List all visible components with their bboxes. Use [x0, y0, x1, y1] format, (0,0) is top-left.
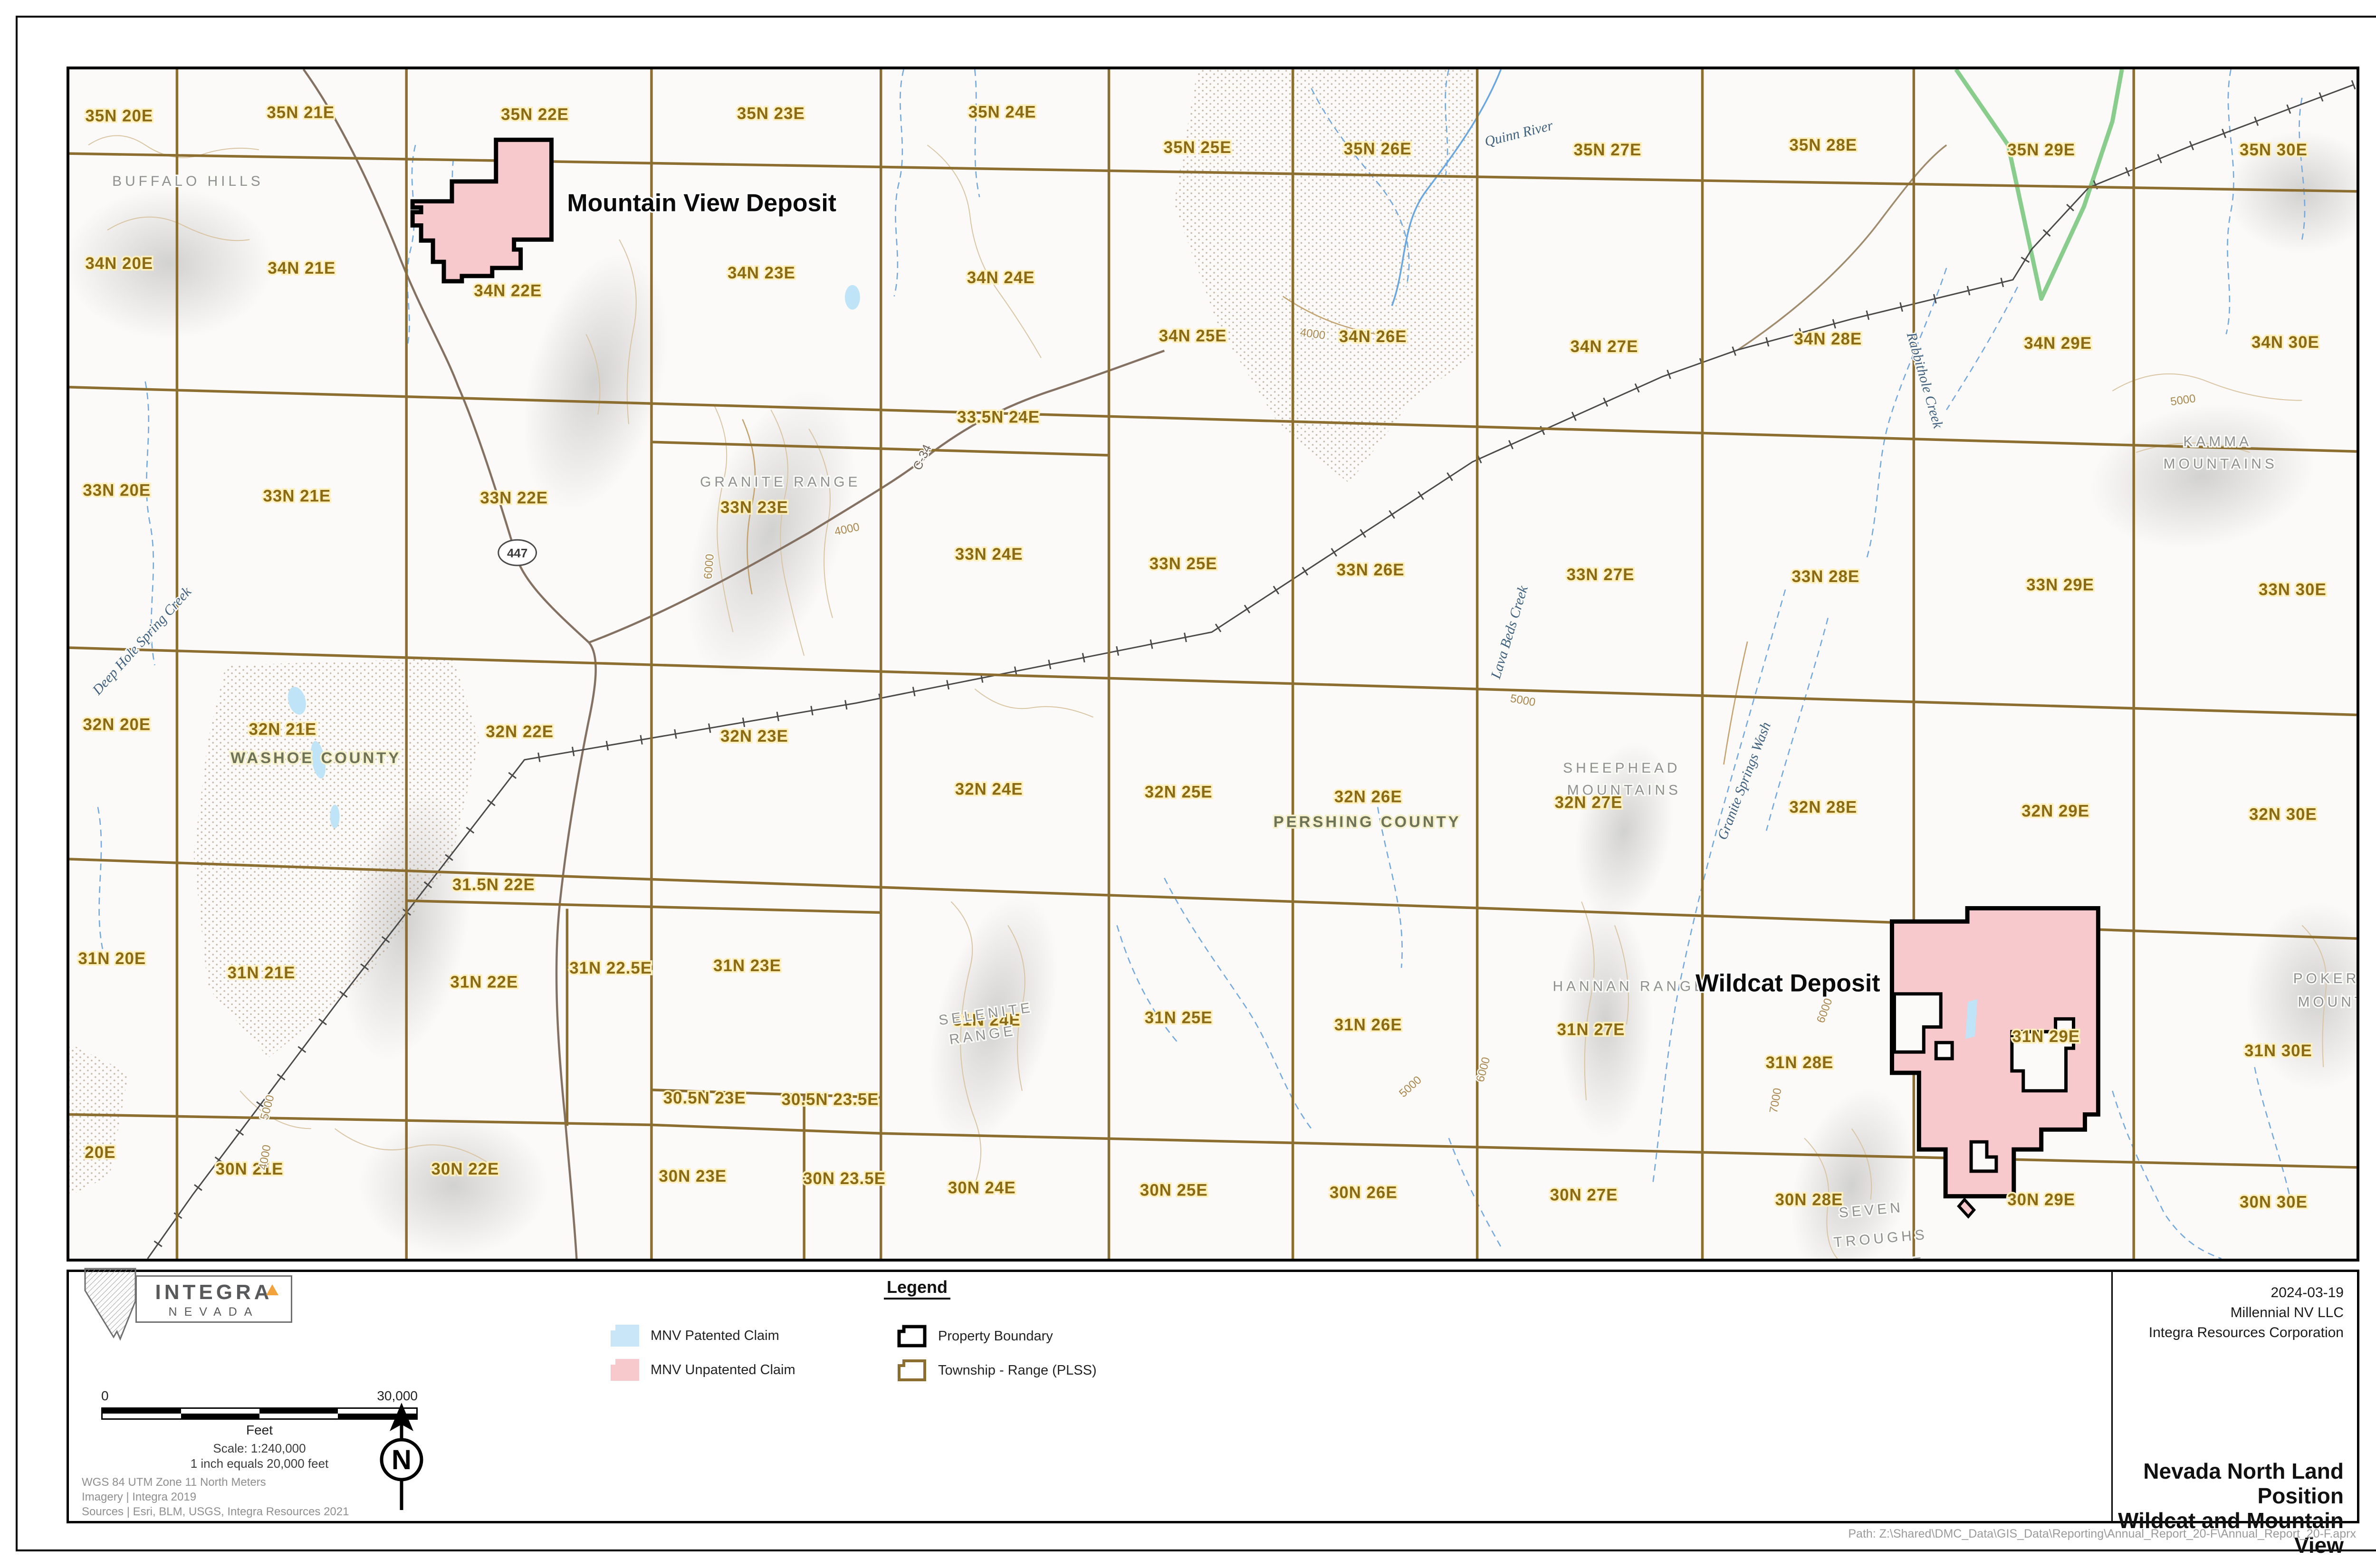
township-label: 35N 23E [737, 105, 805, 123]
township-label: 31N 25E [1145, 1008, 1213, 1027]
township-label: 30N 28E [1775, 1191, 1843, 1209]
route-shield-447: 447 [498, 540, 537, 565]
map-title: Nevada North Land Position Wildcat and M… [2115, 1459, 2344, 1558]
township-label: 31N 29E [2012, 1027, 2080, 1046]
township-label: 35N 21E [267, 104, 335, 122]
property-boundary-icon [896, 1324, 928, 1348]
township-label: 32N 20E [83, 715, 151, 734]
township-label: 35N 28E [1789, 136, 1857, 154]
deposit-label: Wildcat Deposit [1696, 969, 1880, 997]
nevada-state-icon [82, 1266, 139, 1347]
legend-item-label: Property Boundary [938, 1329, 1053, 1344]
township-label: 30N 27E [1550, 1186, 1618, 1205]
township-label: 30N 25E [1140, 1181, 1208, 1200]
township-label: 31N 20E [78, 949, 146, 968]
township-label: 32N 21E [249, 720, 316, 738]
township-label: 33N 23E [720, 498, 788, 517]
township-label: 32N 28E [1789, 798, 1857, 817]
footer-divider [2111, 1270, 2113, 1523]
township-label: 31N 22E [450, 973, 518, 992]
township-label: 32N 26E [1334, 788, 1402, 806]
scale-equiv: 1 inch equals 20,000 feet [101, 1456, 418, 1471]
township-label: 34N 21E [268, 259, 335, 277]
township-label: 32N 29E [2022, 802, 2089, 820]
township-range-icon [896, 1358, 928, 1383]
township-label: 34N 28E [1794, 330, 1862, 348]
township-label: 33N 22E [480, 489, 548, 507]
county-label: PERSHING COUNTY [1274, 813, 1461, 830]
legend-title: Legend [584, 1277, 1250, 1297]
scalebar-units-label: Feet [101, 1423, 418, 1438]
range-name-label: SHEEPHEAD [1563, 760, 1680, 776]
scale-note: Scale: 1:240,000 1 inch equals 20,000 fe… [101, 1441, 418, 1471]
township-label: 33.5N 24E [957, 408, 1040, 426]
integra-nevada-logo: INTEGRA NEVADA [135, 1275, 292, 1323]
range-name-label: MOUNTAIN [2298, 994, 2357, 1010]
township-label: 32N 22E [486, 722, 554, 741]
township-label: 31N 26E [1334, 1015, 1402, 1034]
township-label: 31N 28E [1766, 1053, 1834, 1072]
legend: Legend [584, 1277, 1250, 1297]
township-label: 30N 22E [431, 1160, 499, 1178]
map-canvas: 447 35N 20E35N 21E35N 22E35N 23E35N 24E3… [69, 69, 2357, 1259]
township-label: 35N 27E [1574, 141, 1642, 159]
township-label: 30.5N 23.5E [782, 1090, 879, 1109]
county-label: WASHOE COUNTY [230, 749, 401, 766]
map-frame: 447 35N 20E35N 21E35N 22E35N 23E35N 24E3… [67, 67, 2359, 1262]
map-title-line1: Nevada North Land Position [2115, 1459, 2344, 1508]
township-label: 34N 30E [2251, 333, 2319, 352]
township-label: 31N 30E [2244, 1042, 2312, 1060]
township-label: 34N 20E [85, 254, 153, 273]
township-label: 33N 27E [1567, 565, 1635, 584]
map-sheet: 447 35N 20E35N 21E35N 22E35N 23E35N 24E3… [0, 0, 2376, 1568]
township-label: 33N 25E [1150, 555, 1217, 573]
wildcat-boundary-hole [1936, 1042, 1952, 1059]
scalebar-start-label: 0 [101, 1388, 109, 1404]
township-label: 31N 22.5E [569, 959, 652, 977]
logo-triangle-accent [266, 1284, 278, 1295]
township-label: 34N 22E [474, 282, 542, 300]
north-arrow-n: N [392, 1444, 412, 1475]
township-label: 35N 20E [85, 107, 153, 125]
township-label: 33N 26E [1337, 561, 1405, 579]
township-label: 34N 24E [967, 268, 1035, 287]
township-label: 35N 26E [1344, 140, 1412, 158]
scalebar-labels: 0 30,000 [101, 1388, 418, 1404]
scalebar [101, 1407, 418, 1420]
township-label: 34N 29E [2024, 334, 2092, 353]
logo-nevada-text: NEVADA [137, 1305, 291, 1319]
township-label: 35N 24E [968, 103, 1036, 122]
township-label: 32N 25E [1145, 783, 1213, 802]
township-label: 35N 25E [1164, 138, 1232, 157]
legend-item-unpatented: MNV Unpatented Claim [610, 1358, 795, 1382]
township-label: 33N 28E [1792, 567, 1859, 586]
legend-item-label: MNV Patented Claim [651, 1328, 779, 1344]
legend-item-township-range: Township - Range (PLSS) [896, 1358, 1097, 1383]
township-label: 35N 29E [2007, 141, 2075, 159]
credit-line: WGS 84 UTM Zone 11 North Meters [82, 1475, 349, 1490]
township-label: 31.5N 22E [452, 876, 535, 894]
patented-claim-swatch [610, 1324, 640, 1348]
range-name-label: BUFFALO HILLS [112, 173, 264, 189]
township-label: 20E [85, 1143, 115, 1162]
township-label: 35N 30E [2240, 141, 2308, 159]
township-label: 34N 26E [1339, 327, 1407, 346]
deposit-label: Mountain View Deposit [567, 189, 836, 217]
legend-item-patented: MNV Patented Claim [610, 1324, 779, 1348]
range-name-label: KAMMA [2183, 434, 2252, 449]
township-label: 33N 21E [263, 487, 331, 506]
township-label: 33N 29E [2026, 576, 2094, 594]
township-label: 30N 30E [2240, 1193, 2308, 1212]
credit-line: Sources | Esri, BLM, USGS, Integra Resou… [82, 1504, 349, 1519]
route-shield-label: 447 [507, 547, 527, 560]
legend-item-property-boundary: Property Boundary [896, 1324, 1053, 1348]
township-label: 30N 26E [1330, 1184, 1398, 1202]
township-label: 30.5N 23E [663, 1089, 746, 1108]
range-name-label: MOUNTAINS [2164, 456, 2278, 472]
township-label: 30N 23.5E [803, 1169, 886, 1188]
township-label: 33N 20E [83, 481, 151, 500]
project-path-note: Path: Z:\Shared\DMC_Data\GIS_Data\Report… [950, 1527, 2356, 1541]
map-date: 2024-03-19 [2119, 1283, 2344, 1303]
range-name-label: MOUNTAINS [1567, 783, 1681, 798]
legend-item-label: Township - Range (PLSS) [938, 1363, 1097, 1378]
township-label: 32N 30E [2249, 805, 2317, 823]
range-name-label: HANNAN RANGE [1552, 979, 1707, 994]
legend-item-label: MNV Unpatented Claim [651, 1362, 795, 1378]
township-label: 34N 23E [728, 264, 795, 282]
unpatented-claim-swatch [610, 1358, 640, 1382]
range-name-label: POKER BRO [2293, 971, 2357, 986]
township-label: 31N 23E [713, 956, 781, 975]
township-label: 32N 23E [720, 727, 788, 746]
township-label: 30N 21E [216, 1160, 284, 1178]
township-label: 34N 27E [1571, 337, 1638, 356]
township-label: 30N 29E [2007, 1191, 2075, 1209]
range-name-label: GRANITE RANGE [700, 474, 861, 490]
company-name: Integra Resources Corporation [2119, 1323, 2344, 1343]
contour-elevation-label: 6000 [701, 554, 717, 580]
north-arrow-icon: N [375, 1402, 428, 1513]
township-label: 30N 24E [948, 1179, 1016, 1197]
credit-line: Imagery | Integra 2019 [82, 1490, 349, 1504]
township-label: 32N 24E [955, 780, 1023, 799]
township-label: 34N 25E [1159, 326, 1227, 345]
company-name: Millennial NV LLC [2119, 1303, 2344, 1323]
township-label: 30N 23E [659, 1167, 727, 1186]
township-label: 33N 30E [2259, 581, 2327, 599]
township-label: 31N 27E [1557, 1020, 1625, 1039]
township-label: 31N 21E [228, 964, 296, 982]
scale-ratio: Scale: 1:240,000 [101, 1441, 418, 1456]
title-block: 2024-03-19 Millennial NV LLC Integra Res… [2119, 1283, 2344, 1343]
township-label: 33N 24E [955, 545, 1023, 564]
township-label: 35N 22E [501, 105, 569, 124]
map-credits: WGS 84 UTM Zone 11 North Meters Imagery … [82, 1475, 349, 1519]
